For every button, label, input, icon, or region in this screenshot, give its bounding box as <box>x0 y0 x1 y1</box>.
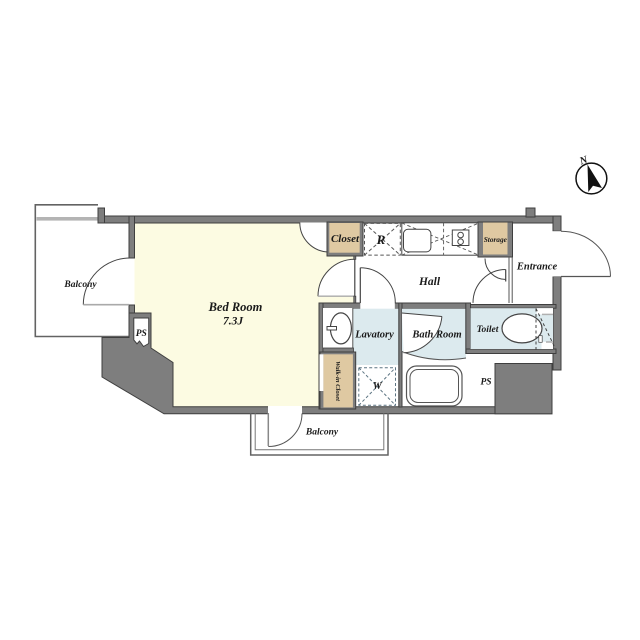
svg-text:R: R <box>376 232 386 247</box>
svg-text:Balcony: Balcony <box>63 280 97 290</box>
svg-text:Hall: Hall <box>418 276 441 288</box>
svg-text:PS: PS <box>480 378 491 388</box>
svg-text:Bed Room: Bed Room <box>208 300 263 314</box>
svg-text:7.3J: 7.3J <box>223 316 244 328</box>
svg-text:PS: PS <box>136 329 147 339</box>
svg-text:Entrance: Entrance <box>516 262 558 273</box>
svg-text:Storage: Storage <box>484 235 508 244</box>
svg-text:Balcony: Balcony <box>305 428 339 438</box>
svg-text:W: W <box>373 381 383 392</box>
svg-text:Closet: Closet <box>331 233 360 245</box>
svg-text:Walk-in Closet: Walk-in Closet <box>334 361 341 401</box>
svg-text:Toilet: Toilet <box>477 325 499 335</box>
svg-text:Bath Room: Bath Room <box>411 330 461 341</box>
svg-text:Lavatory: Lavatory <box>354 330 394 341</box>
